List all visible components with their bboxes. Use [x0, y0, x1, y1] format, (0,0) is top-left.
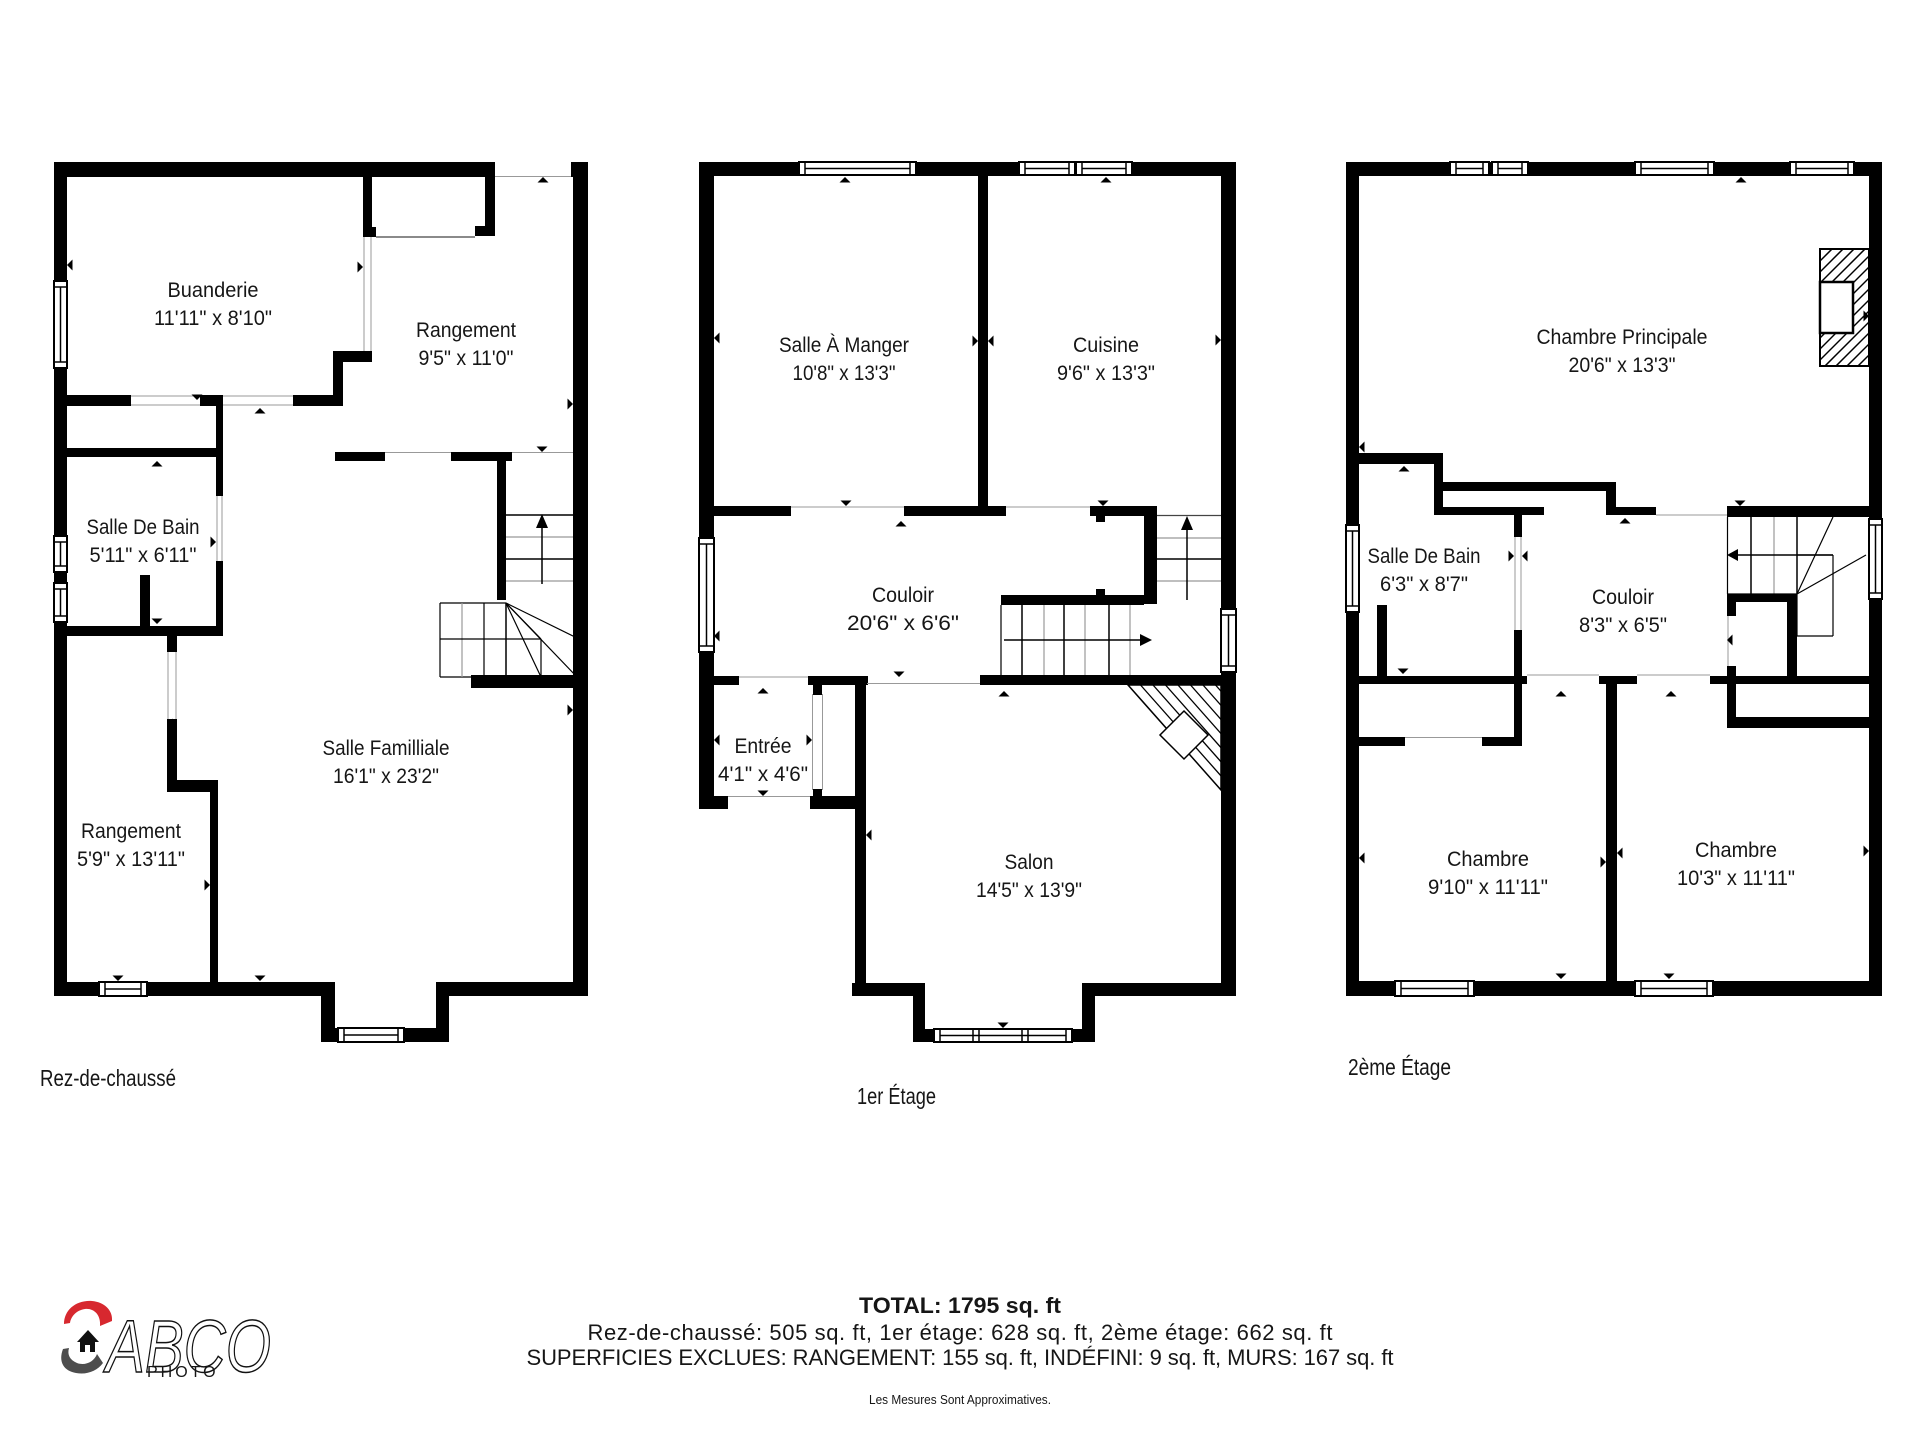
svg-text:Chambre Principale: Chambre Principale [1537, 325, 1708, 349]
svg-text:Chambre: Chambre [1695, 838, 1777, 862]
svg-text:9'6" x 13'3": 9'6" x 13'3" [1057, 361, 1155, 385]
svg-text:Entrée: Entrée [735, 734, 792, 758]
svg-text:16'1" x 23'2": 16'1" x 23'2" [333, 764, 439, 788]
svg-text:20'6" x 13'3": 20'6" x 13'3" [1569, 353, 1676, 377]
svg-text:Rangement: Rangement [81, 819, 181, 843]
svg-text:1er Étage: 1er Étage [857, 1083, 936, 1109]
svg-text:Salon: Salon [1005, 850, 1054, 874]
svg-text:Couloir: Couloir [1592, 585, 1654, 609]
svg-text:Rangement: Rangement [416, 318, 516, 342]
svg-text:2ème Étage: 2ème Étage [1348, 1054, 1451, 1080]
svg-text:4'1" x 4'6": 4'1" x 4'6" [718, 762, 808, 786]
svg-text:20'6" x 6'6": 20'6" x 6'6" [847, 611, 959, 635]
svg-text:Salle De Bain: Salle De Bain [87, 515, 200, 539]
svg-text:TOTAL: 1795 sq. ft: TOTAL: 1795 sq. ft [859, 1293, 1062, 1318]
svg-text:5'9" x 13'11": 5'9" x 13'11" [77, 847, 185, 871]
svg-text:10'8" x 13'3": 10'8" x 13'3" [793, 361, 896, 385]
svg-text:Salle À Manger: Salle À Manger [779, 332, 909, 357]
svg-text:Chambre: Chambre [1447, 847, 1529, 871]
svg-text:11'11" x 8'10": 11'11" x 8'10" [154, 306, 272, 330]
svg-text:8'3" x 6'5": 8'3" x 6'5" [1579, 613, 1667, 637]
svg-text:Salle De Bain: Salle De Bain [1368, 544, 1481, 568]
svg-text:14'5" x 13'9": 14'5" x 13'9" [976, 878, 1082, 902]
svg-text:Buanderie: Buanderie [168, 278, 259, 302]
svg-text:6'3" x 8'7": 6'3" x 8'7" [1380, 572, 1468, 596]
svg-text:9'10" x 11'11": 9'10" x 11'11" [1428, 875, 1548, 899]
svg-text:5'11" x 6'11": 5'11" x 6'11" [90, 543, 197, 567]
svg-text:Salle Familliale: Salle Familliale [323, 736, 450, 760]
svg-text:Cuisine: Cuisine [1073, 333, 1139, 357]
svg-text:PHOTO: PHOTO [147, 1364, 219, 1381]
svg-text:SUPERFICIES EXCLUES: RANGEMENT: SUPERFICIES EXCLUES: RANGEMENT: 155 sq. … [527, 1345, 1394, 1370]
svg-text:10'3" x 11'11": 10'3" x 11'11" [1677, 866, 1795, 890]
svg-text:Les Mesures Sont Approximative: Les Mesures Sont Approximatives. [869, 1392, 1051, 1407]
svg-text:9'5" x 11'0": 9'5" x 11'0" [419, 346, 514, 370]
svg-text:Rez-de-chaussé: Rez-de-chaussé [40, 1065, 176, 1091]
svg-text:Couloir: Couloir [872, 583, 934, 607]
svg-text:Rez-de-chaussé: 505 sq. ft, 1e: Rez-de-chaussé: 505 sq. ft, 1er étage: 6… [588, 1320, 1333, 1345]
